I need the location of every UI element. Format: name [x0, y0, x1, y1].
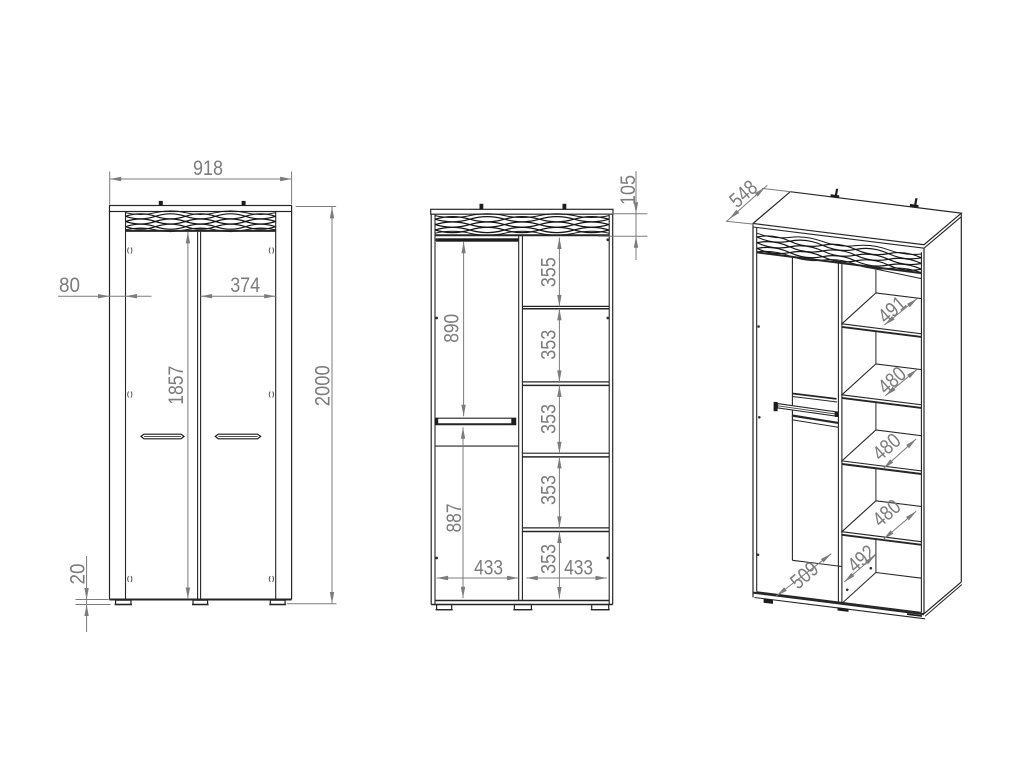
svg-text:433: 433 — [474, 556, 503, 579]
svg-text:374: 374 — [230, 274, 260, 297]
svg-text:105: 105 — [617, 175, 640, 205]
svg-text:353: 353 — [538, 330, 561, 360]
svg-text:887: 887 — [443, 504, 466, 533]
svg-text:20: 20 — [66, 564, 89, 585]
svg-text:80: 80 — [59, 274, 80, 297]
svg-text:1857: 1857 — [165, 366, 188, 405]
svg-text:433: 433 — [564, 556, 593, 579]
svg-text:2000: 2000 — [312, 365, 335, 406]
svg-text:890: 890 — [441, 314, 464, 343]
svg-text:353: 353 — [538, 475, 561, 505]
svg-text:353: 353 — [538, 404, 561, 434]
svg-text:355: 355 — [538, 257, 561, 287]
svg-text:918: 918 — [193, 157, 223, 180]
svg-text:353: 353 — [538, 544, 561, 574]
